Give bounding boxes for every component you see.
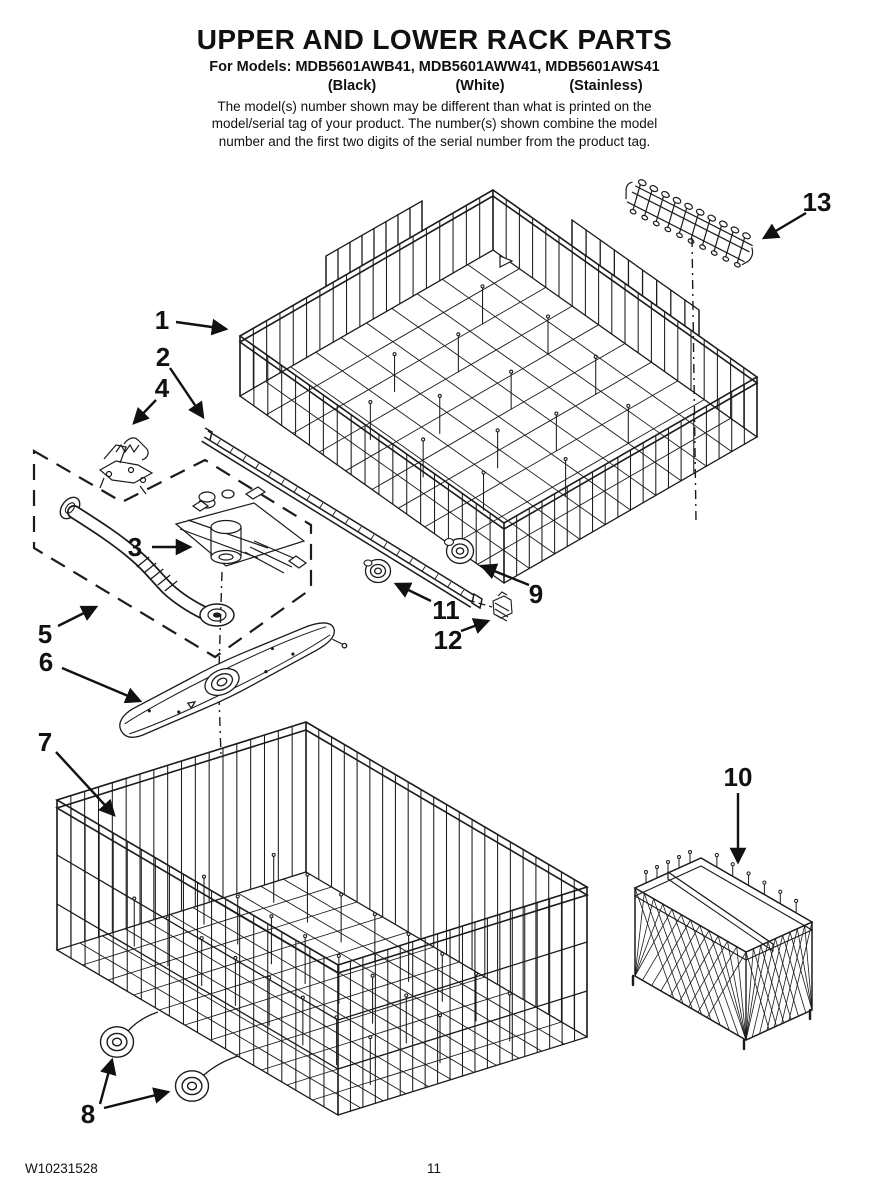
callout-2-label: 2	[156, 342, 170, 372]
document-number: W10231528	[25, 1161, 98, 1176]
callout-3-label: 3	[128, 532, 142, 562]
callout-5-label: 5	[38, 619, 52, 649]
callout-12-label: 12	[434, 625, 463, 655]
parts-page: UPPER AND LOWER RACK PARTS For Models: M…	[0, 0, 869, 1200]
water-feed-assembly-drawing	[176, 487, 306, 573]
callout-9: 9	[482, 566, 543, 609]
callout-1-label: 1	[155, 305, 169, 335]
parts-diagram: 1 2 4 3 5 6 7	[0, 0, 869, 1200]
callout-10: 10	[724, 762, 753, 862]
lower-rack-wheel-drawing	[101, 1027, 134, 1057]
callout-13-label: 13	[803, 187, 832, 217]
lower-rack-wheel-drawing	[176, 1071, 209, 1101]
callout-6-label: 6	[39, 647, 53, 677]
tine-row-accessory-drawing	[617, 175, 760, 271]
callout-9-label: 9	[529, 579, 543, 609]
rail-clip-drawing	[493, 592, 512, 621]
callout-5: 5	[38, 607, 96, 649]
callout-13: 13	[764, 187, 831, 238]
callout-10-label: 10	[724, 762, 753, 792]
mounting-bracket-drawing	[100, 438, 152, 494]
wheel-stem	[128, 1012, 158, 1031]
callout-8: 8	[81, 1060, 168, 1129]
callout-11: 11	[396, 584, 460, 625]
callout-3: 3	[128, 532, 190, 562]
callout-4: 4	[134, 373, 170, 423]
wheel-axle	[364, 560, 372, 566]
callout-8-label: 8	[81, 1099, 95, 1129]
lower-rack-drawing	[57, 722, 587, 1115]
silverware-basket-drawing	[633, 851, 812, 1050]
assembly-line-13	[692, 238, 696, 520]
callout-11-label: 11	[432, 595, 460, 625]
assembly-line-6	[219, 696, 221, 756]
callout-1: 1	[155, 305, 226, 335]
callout-12: 12	[434, 621, 488, 655]
page-number: 11	[412, 1161, 456, 1176]
wheel-stem	[204, 1056, 238, 1075]
callout-6: 6	[39, 647, 140, 701]
spray-arm-drawing	[114, 610, 348, 752]
wheel-axle	[445, 539, 454, 546]
dashed-assembly-outline	[34, 451, 311, 657]
callout-7-label: 7	[38, 727, 52, 757]
feed-tube-drawing	[56, 494, 234, 626]
callout-4-label: 4	[155, 373, 170, 403]
upper-rack-drawing	[240, 190, 757, 583]
